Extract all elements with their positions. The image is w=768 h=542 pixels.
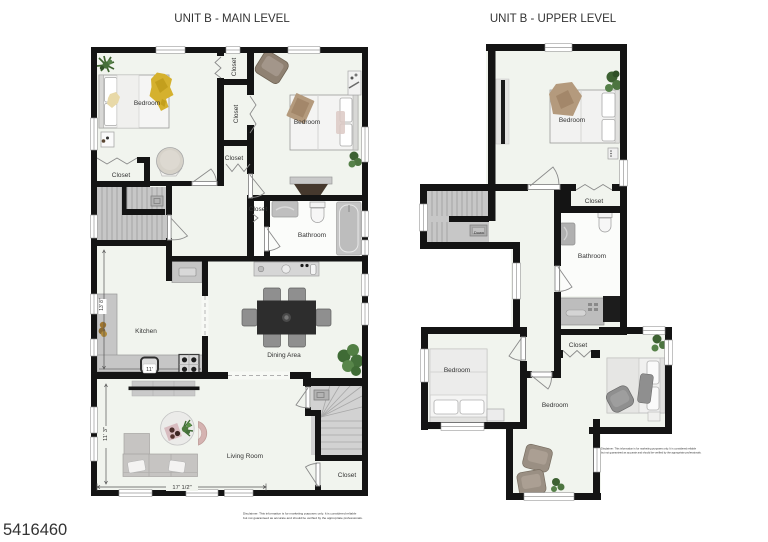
svg-text:Kitchen: Kitchen — [135, 328, 157, 335]
svg-text:Dining Area: Dining Area — [267, 352, 301, 359]
svg-text:Disclaimer: This information i: Disclaimer: This information is for mark… — [601, 447, 697, 451]
svg-text:17' 1/2": 17' 1/2" — [172, 485, 191, 491]
svg-text:UNIT B - UPPER LEVEL: UNIT B - UPPER LEVEL — [490, 13, 617, 25]
svg-text:11' 3": 11' 3" — [103, 427, 109, 441]
svg-text:Bedroom: Bedroom — [542, 402, 568, 409]
svg-text:Closet: Closet — [233, 105, 240, 124]
svg-text:Closet: Closet — [585, 198, 604, 205]
svg-text:Closet: Closet — [112, 172, 131, 179]
svg-text:Down: Down — [474, 230, 484, 235]
svg-text:Disclaimer: This information i: Disclaimer: This information is for mark… — [243, 512, 357, 516]
svg-text:Bedroom: Bedroom — [294, 119, 320, 126]
svg-text:11': 11' — [146, 367, 153, 373]
svg-text:Closet: Closet — [231, 58, 238, 77]
svg-text:Bathroom: Bathroom — [578, 253, 606, 260]
svg-text:Bathroom: Bathroom — [298, 232, 326, 239]
svg-text:Closet: Closet — [569, 342, 588, 349]
svg-text:but not guaranteed as accurate: but not guaranteed as accurate and shoul… — [601, 451, 702, 455]
svg-text:but not guaranteed as accurate: but not guaranteed as accurate and shoul… — [243, 516, 363, 520]
svg-text:13' 8": 13' 8" — [99, 298, 105, 311]
svg-text:Bedroom: Bedroom — [134, 100, 160, 107]
svg-text:Closet: Closet — [249, 206, 268, 213]
svg-text:UNIT B - MAIN LEVEL: UNIT B - MAIN LEVEL — [174, 13, 290, 25]
svg-text:5416460: 5416460 — [3, 521, 67, 539]
svg-text:Closet: Closet — [225, 155, 244, 162]
svg-text:Bedroom: Bedroom — [559, 117, 585, 124]
svg-text:Living Room: Living Room — [227, 453, 263, 460]
svg-text:Bedroom: Bedroom — [444, 367, 470, 374]
svg-text:Closet: Closet — [338, 472, 357, 479]
